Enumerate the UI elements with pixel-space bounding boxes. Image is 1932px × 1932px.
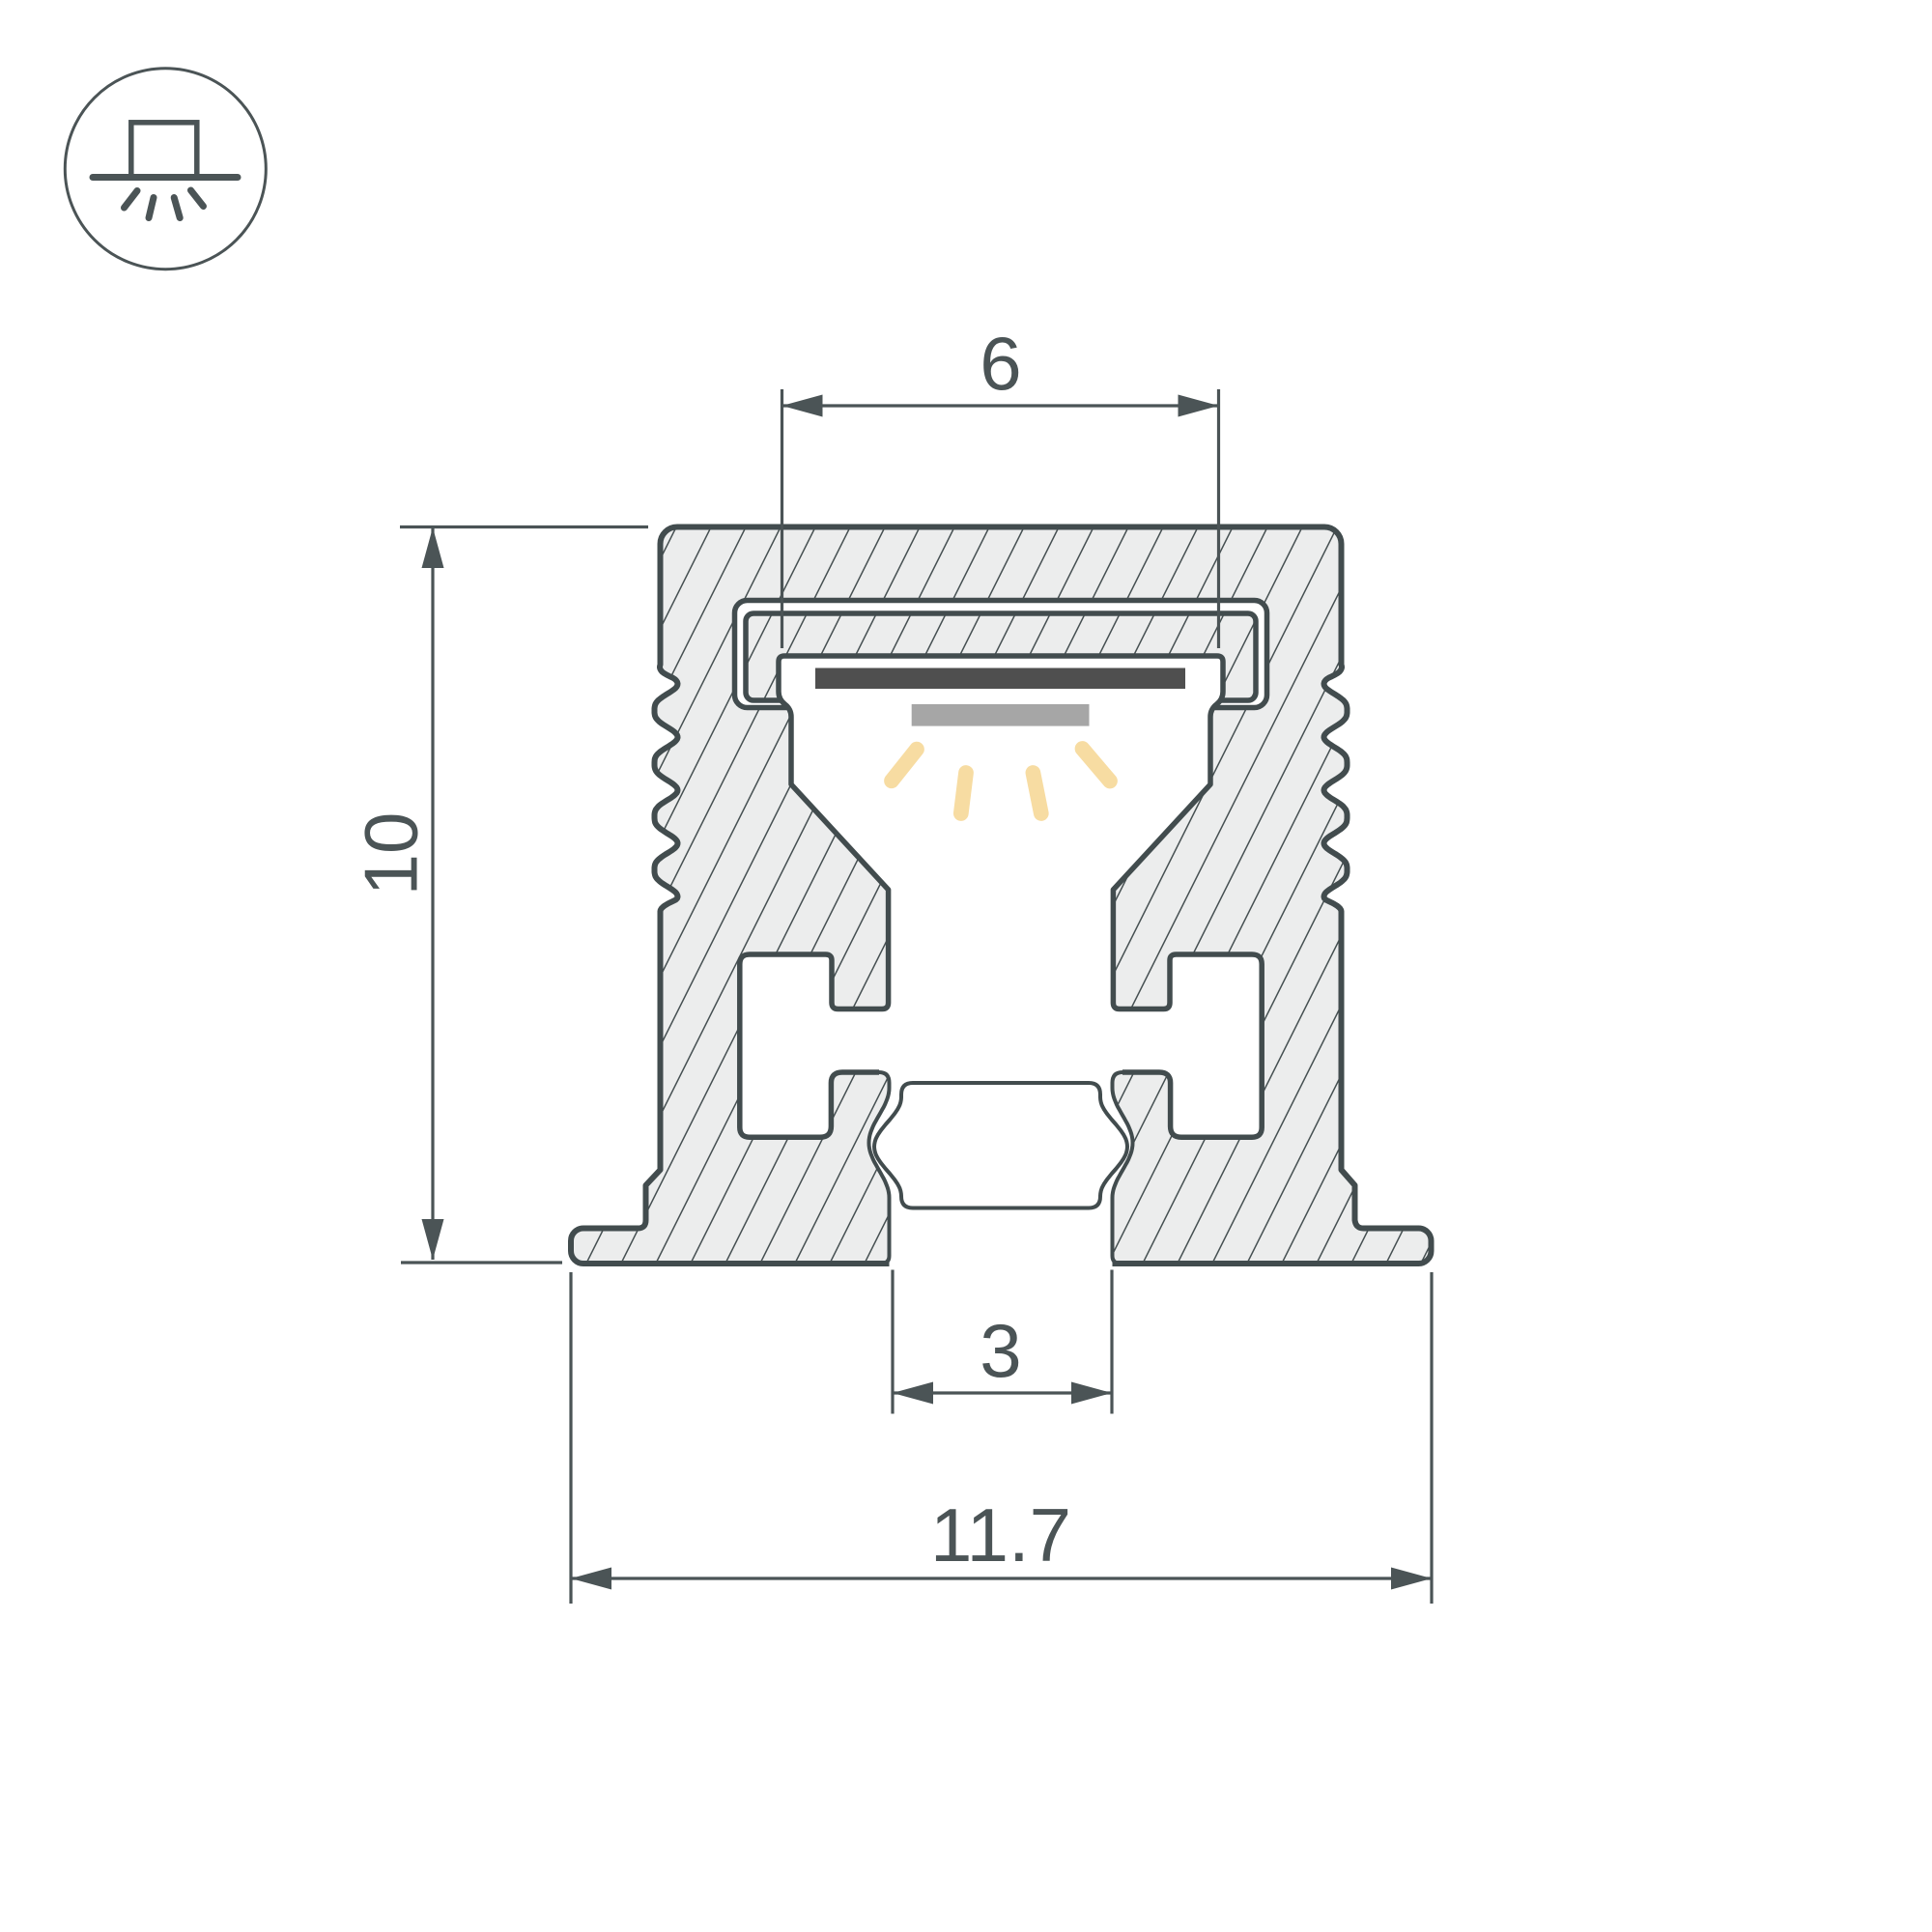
svg-text:10: 10	[349, 812, 434, 896]
svg-text:6: 6	[980, 321, 1021, 406]
svg-text:3: 3	[980, 1308, 1021, 1393]
svg-text:11.7: 11.7	[930, 1492, 1071, 1577]
